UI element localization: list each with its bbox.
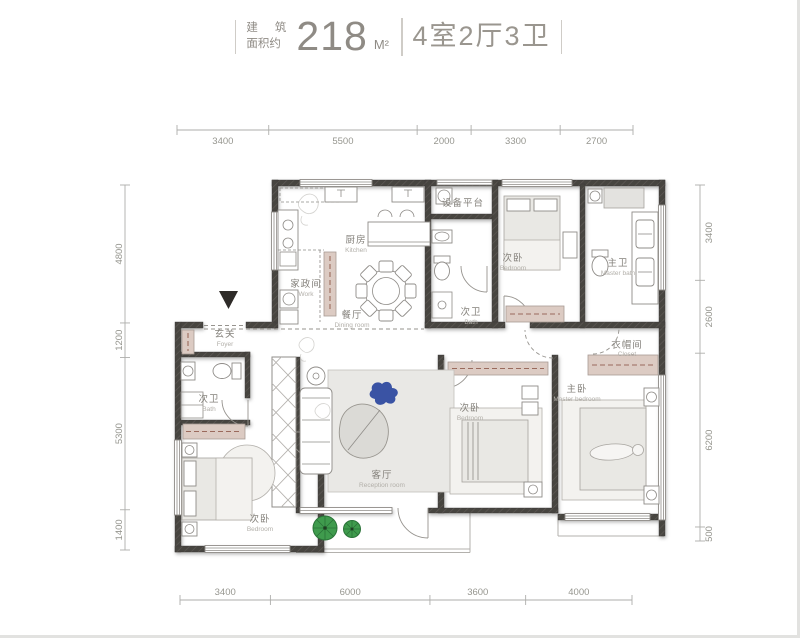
- label-foyer: 玄关: [214, 328, 235, 340]
- dimension-value: 6200: [704, 430, 715, 451]
- window-platform-front: [437, 180, 492, 185]
- svg-text:Master bath: Master bath: [601, 270, 636, 277]
- dimension-value: 2000: [434, 136, 455, 147]
- label-kitchen: 厨房: [345, 234, 366, 246]
- dimension-value: 3300: [505, 136, 526, 147]
- master-bedroom-furniture: [562, 388, 659, 504]
- entrance-arrow-icon: [219, 291, 238, 309]
- dimension-right: 340026006200500: [695, 185, 715, 542]
- label-work: 家政间: [290, 278, 322, 290]
- dimension-value: 4000: [568, 587, 589, 598]
- svg-text:Kitchen: Kitchen: [345, 247, 367, 254]
- window-bedroomleft-left: [175, 440, 182, 515]
- floor-plan-canvas: 34005500200033002700 3400600036004000 48…: [0, 0, 800, 638]
- furniture: [181, 187, 659, 540]
- dimension-value: 4800: [114, 243, 125, 264]
- bedroom-mid-wardrobe: [448, 362, 548, 375]
- dimension-value: 3600: [467, 587, 488, 598]
- dimension-value: 2700: [586, 136, 607, 147]
- dimension-value: 500: [704, 526, 715, 542]
- door-bath-mid: [461, 266, 487, 292]
- svg-text:Reception room: Reception room: [359, 482, 405, 489]
- svg-text:Bedroom: Bedroom: [247, 526, 273, 533]
- plant-icon: [313, 516, 337, 540]
- svg-text:Bath: Bath: [464, 319, 478, 326]
- label-bath-mid: 次卫: [460, 306, 481, 318]
- dimension-value: 5300: [114, 423, 125, 444]
- svg-text:Work: Work: [298, 291, 314, 298]
- label-equipment-platform: 设备平台: [442, 197, 484, 209]
- master-bath-fixtures: [588, 188, 658, 304]
- label-closet: 衣帽间: [611, 339, 643, 351]
- label-bedroom-top: 次卧: [502, 252, 523, 264]
- svg-text:Dining room: Dining room: [334, 322, 369, 329]
- dimension-value: 2600: [704, 306, 715, 327]
- svg-text:Foyer: Foyer: [217, 341, 234, 348]
- dimension-bottom: 3400600036004000: [180, 587, 632, 605]
- label-living: 客厅: [371, 469, 392, 481]
- bedroom-top-wardrobe: [506, 306, 564, 322]
- window-kitchen-top: [300, 180, 372, 187]
- bedroom-left-wardrobe: [183, 424, 245, 439]
- door-master-bedroom: [525, 330, 553, 358]
- svg-text:Bedroom: Bedroom: [457, 415, 483, 422]
- work-cabinet: [324, 252, 336, 316]
- label-master-bath: 主卫: [607, 257, 628, 269]
- plants: [313, 516, 361, 540]
- dimension-value: 5500: [332, 136, 353, 147]
- window-living-bottom: [300, 508, 392, 514]
- dimension-top: 34005500200033002700: [177, 125, 633, 147]
- label-bedroom-left: 次卧: [249, 513, 270, 525]
- window-bedroomleft-bottom: [205, 546, 290, 553]
- closet-wardrobe: [588, 355, 658, 375]
- dimension-value: 3400: [215, 587, 236, 598]
- label-dining: 餐厅: [341, 309, 362, 321]
- plant-icon: [344, 521, 361, 538]
- label-bedroom-mid: 次卧: [459, 402, 480, 414]
- window-bedroom-top: [502, 180, 572, 187]
- foyer-shoe-cabinet: [182, 330, 194, 354]
- dimension-left: 4800120053001400: [114, 185, 130, 550]
- dimension-value: 1400: [114, 519, 125, 540]
- window-masterbath-right: [659, 205, 666, 290]
- dimension-value: 6000: [340, 587, 361, 598]
- dimension-value: 3400: [212, 136, 233, 147]
- svg-text:Closet: Closet: [618, 351, 637, 358]
- door-terrace: [398, 508, 428, 538]
- window-master-right: [659, 375, 666, 520]
- floor-plan-page: 建筑 面积约 218 M² 4室2厅3卫 3400550020003300270…: [0, 0, 800, 638]
- bath-mid-fixtures: [432, 230, 452, 318]
- hall-storage-cabinet: [272, 357, 296, 507]
- label-master-bedroom: 主卧: [566, 383, 587, 395]
- svg-text:Bath: Bath: [202, 406, 216, 413]
- window-kitchen-left: [272, 212, 279, 270]
- dimension-value: 3400: [704, 222, 715, 243]
- dining-table: [356, 261, 416, 321]
- svg-text:Master bedroom: Master bedroom: [553, 396, 600, 403]
- label-bath-left: 次卫: [198, 393, 219, 405]
- window-master-bottom: [565, 514, 650, 521]
- svg-text:Bedroom: Bedroom: [500, 265, 526, 272]
- dimension-value: 1200: [114, 330, 125, 351]
